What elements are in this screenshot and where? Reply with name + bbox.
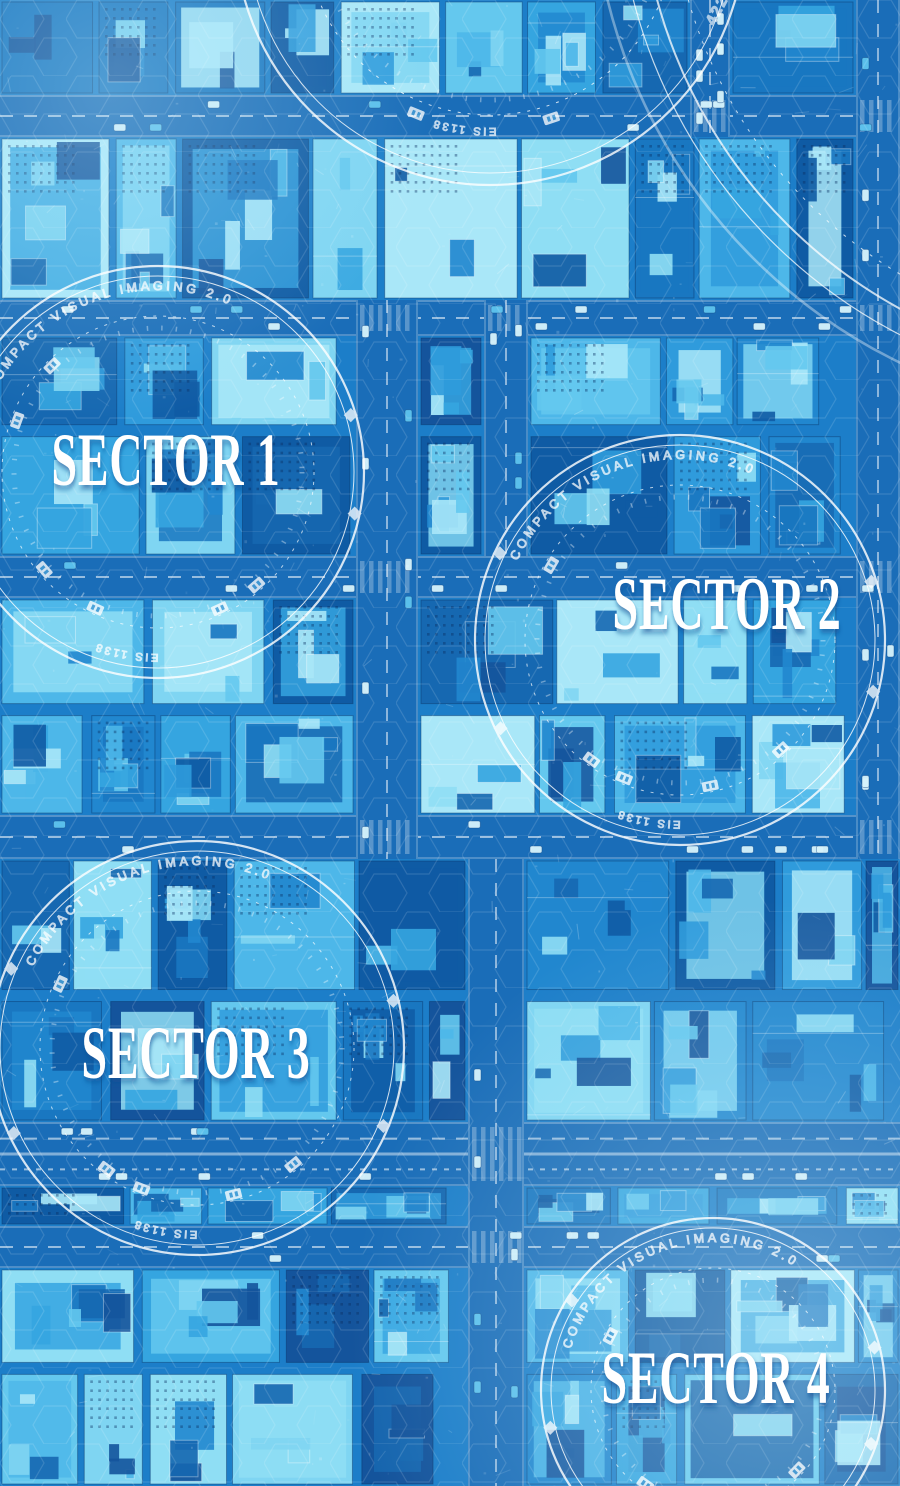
sector-1-label[interactable]: SECTOR 1 (52, 417, 281, 502)
sector-map: EIS 1138422COMPACT VISUAL IMAGING 2.0EIS… (0, 0, 900, 1486)
sector-4-label[interactable]: SECTOR 4 (602, 1335, 831, 1420)
sector-2-label[interactable]: SECTOR 2 (613, 561, 842, 646)
sector-3-label[interactable]: SECTOR 3 (82, 1010, 311, 1095)
